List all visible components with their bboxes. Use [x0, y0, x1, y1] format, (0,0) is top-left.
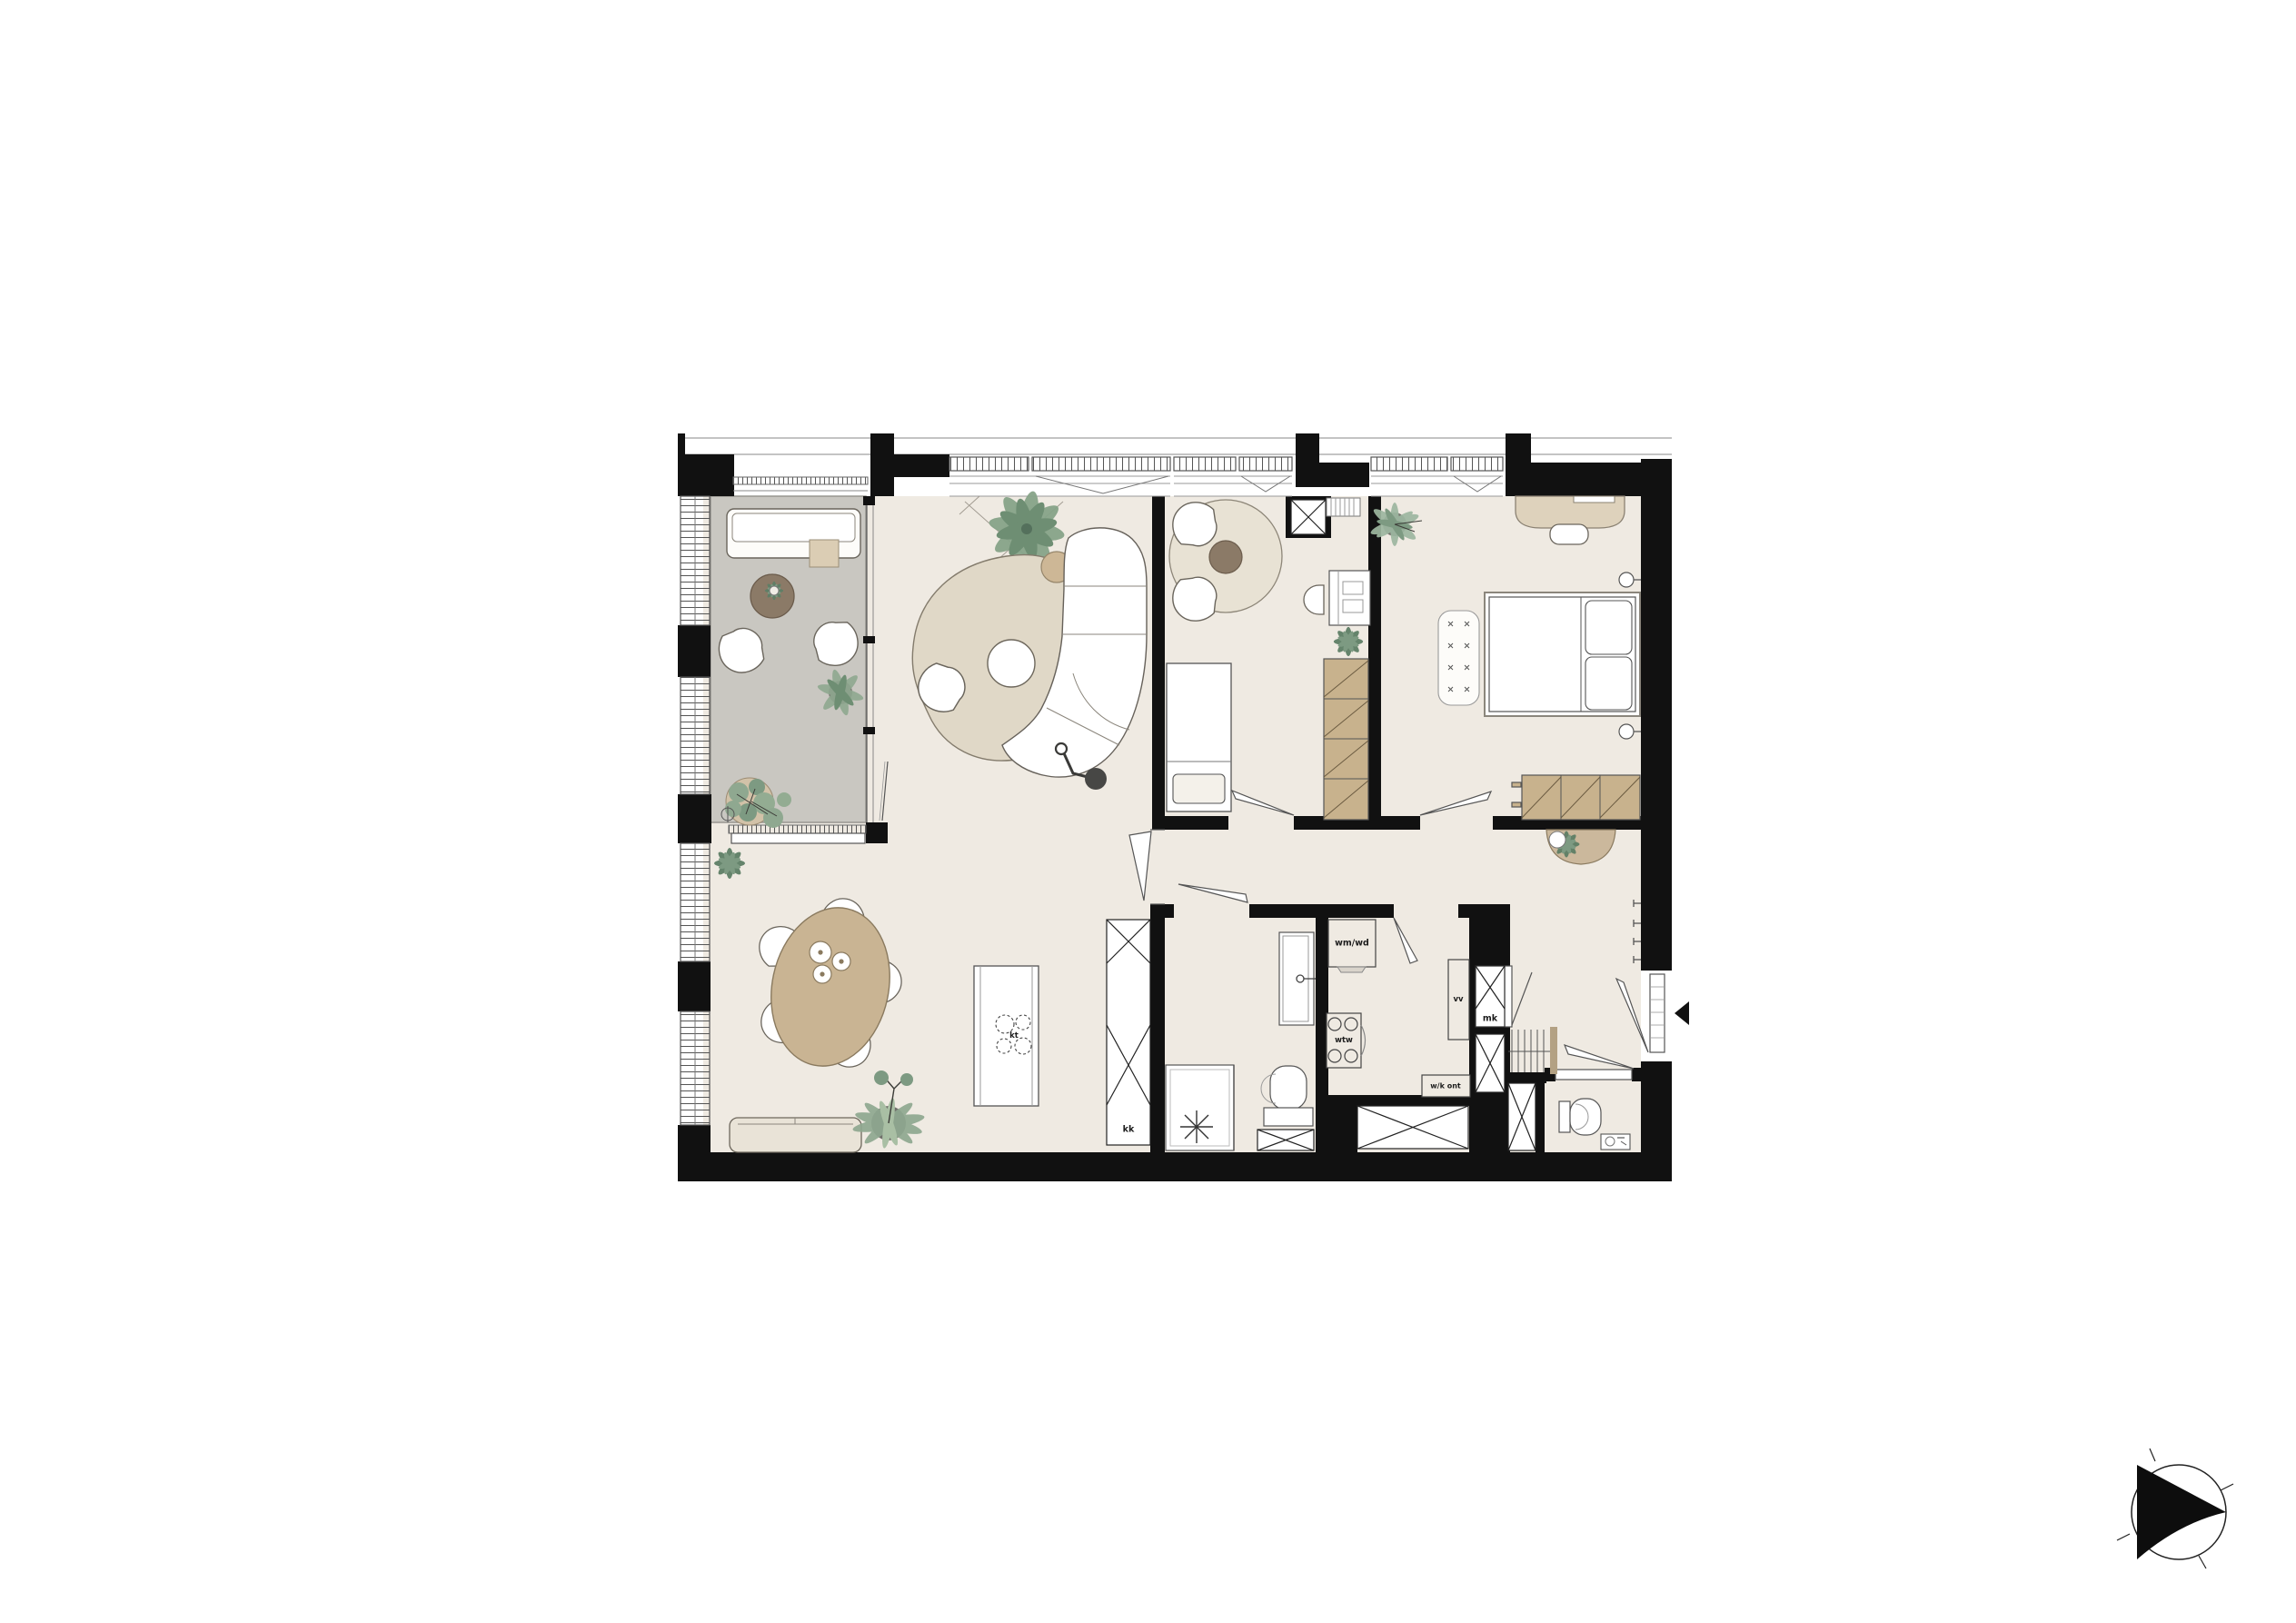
window-strip	[949, 457, 1503, 471]
label-fridge: kk	[1123, 1125, 1135, 1135]
top-windows	[733, 457, 1503, 496]
pillow	[1173, 774, 1225, 803]
small-plant	[714, 848, 745, 879]
washbasin	[1279, 932, 1316, 1025]
label-meter-cupboard: mk	[1483, 1014, 1497, 1024]
label-tall-cabinet: vv	[1453, 995, 1463, 1004]
radiator	[1327, 498, 1360, 516]
small-table	[1209, 541, 1242, 573]
sideboard	[730, 1118, 861, 1152]
entrance-marker-icon	[1675, 1001, 1689, 1025]
shaft-mk-column	[1476, 1034, 1505, 1092]
floor-plan-page: kt kk wm/wd wtw vv mk w/k ont	[0, 0, 2296, 1623]
north-arrow-icon	[2117, 1449, 2233, 1568]
desk	[1329, 571, 1370, 625]
shower	[1166, 1065, 1234, 1150]
bedside-rug	[1438, 611, 1479, 705]
label-heat-recovery: wtw	[1335, 1036, 1353, 1045]
bench-cushion	[810, 540, 839, 567]
single-bed	[1167, 663, 1231, 811]
desk-chair	[1550, 524, 1588, 544]
coffee-table	[988, 640, 1035, 687]
pillow	[1585, 601, 1632, 654]
table-plant	[765, 582, 783, 600]
vent-flap-symbols	[1036, 476, 1501, 493]
label-cooktop: kt	[1009, 1031, 1019, 1041]
double-bed	[1485, 592, 1640, 716]
hand-basin	[1601, 1134, 1630, 1150]
label-heat-cold-delivery: w/k ont	[1430, 1082, 1460, 1090]
shaft-large	[1357, 1106, 1468, 1149]
kitchen-island	[974, 966, 1039, 1106]
wardrobe	[1512, 775, 1640, 820]
loggia-top-rail	[733, 477, 868, 491]
shaft-entry	[1508, 1083, 1536, 1150]
kitchen-cabinet-column	[1107, 920, 1150, 1145]
small-plant	[1334, 627, 1363, 656]
wardrobe	[1324, 659, 1368, 820]
pillow	[1585, 657, 1632, 710]
toilet	[1559, 1099, 1601, 1135]
label-washer-dryer: wm/wd	[1335, 939, 1369, 949]
shower-head-icon	[1180, 1110, 1213, 1143]
shaft-bedroom2-top	[1291, 500, 1326, 534]
shaft-bathroom	[1257, 1130, 1314, 1150]
floor-plan-drawing	[0, 0, 2296, 1623]
